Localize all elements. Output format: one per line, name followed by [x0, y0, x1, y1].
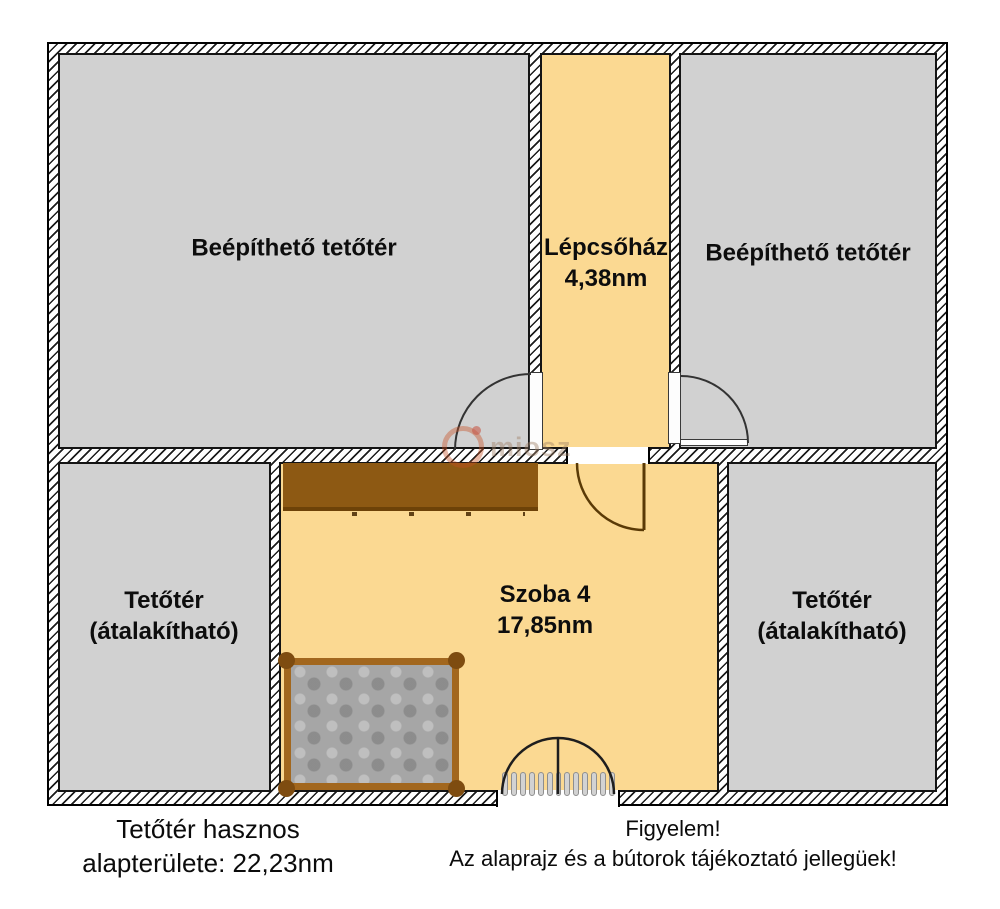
- bed-post: [278, 780, 295, 797]
- room-area-text: 4,38nm: [544, 263, 668, 294]
- watermark-logo-icon: [442, 426, 484, 468]
- bed-post: [448, 652, 465, 669]
- door-leaf-right: [680, 439, 748, 446]
- door-opening-szoba4: [566, 447, 650, 464]
- room-label-staircase: Lépcsőház 4,38nm: [544, 232, 668, 294]
- room-label-bottom-right: Tetőtér (átalakítható): [757, 585, 906, 647]
- caption-line: alapterülete: 22,23nm: [33, 846, 383, 880]
- floor-plan: Beépíthető tetőtér Lépcsőház 4,38nm Beép…: [0, 0, 1000, 909]
- bed: [284, 658, 459, 790]
- room-label-szoba4: Szoba 4 17,85nm: [497, 579, 593, 641]
- radiator: [502, 772, 615, 796]
- room-label-text: Szoba 4: [497, 579, 593, 610]
- caption-usable-area: Tetőtér hasznos alapterülete: 22,23nm: [33, 812, 383, 880]
- room-label-text: Beépíthető tetőtér: [191, 235, 396, 262]
- wardrobe-handles: [300, 512, 525, 516]
- room-label-text: Lépcsőház: [544, 232, 668, 263]
- bed-post: [278, 652, 295, 669]
- bed-post: [448, 780, 465, 797]
- caption-line: Figyelem!: [448, 814, 898, 844]
- caption-line: Tetőtér hasznos: [33, 812, 383, 846]
- room-label-text: Beépíthető tetőtér: [705, 240, 910, 267]
- wardrobe: [283, 463, 538, 511]
- caption-disclaimer: Figyelem! Az alaprajz és a bútorok tájék…: [448, 814, 898, 874]
- watermark: miosz: [442, 426, 572, 468]
- room-label-text: (átalakítható): [757, 616, 906, 647]
- room-label-top-right: Beépíthető tetőtér: [705, 238, 910, 269]
- room-area-text: 17,85nm: [497, 610, 593, 641]
- door-opening-right: [668, 372, 681, 444]
- watermark-text: miosz: [490, 432, 572, 463]
- room-label-text: Tetőtér: [89, 585, 238, 616]
- caption-line: Az alaprajz és a bútorok tájékoztató jel…: [448, 844, 898, 874]
- room-label-bottom-left: Tetőtér (átalakítható): [89, 585, 238, 647]
- room-label-top-left: Beépíthető tetőtér: [191, 233, 396, 264]
- room-label-text: Tetőtér: [757, 585, 906, 616]
- room-label-text: (átalakítható): [89, 616, 238, 647]
